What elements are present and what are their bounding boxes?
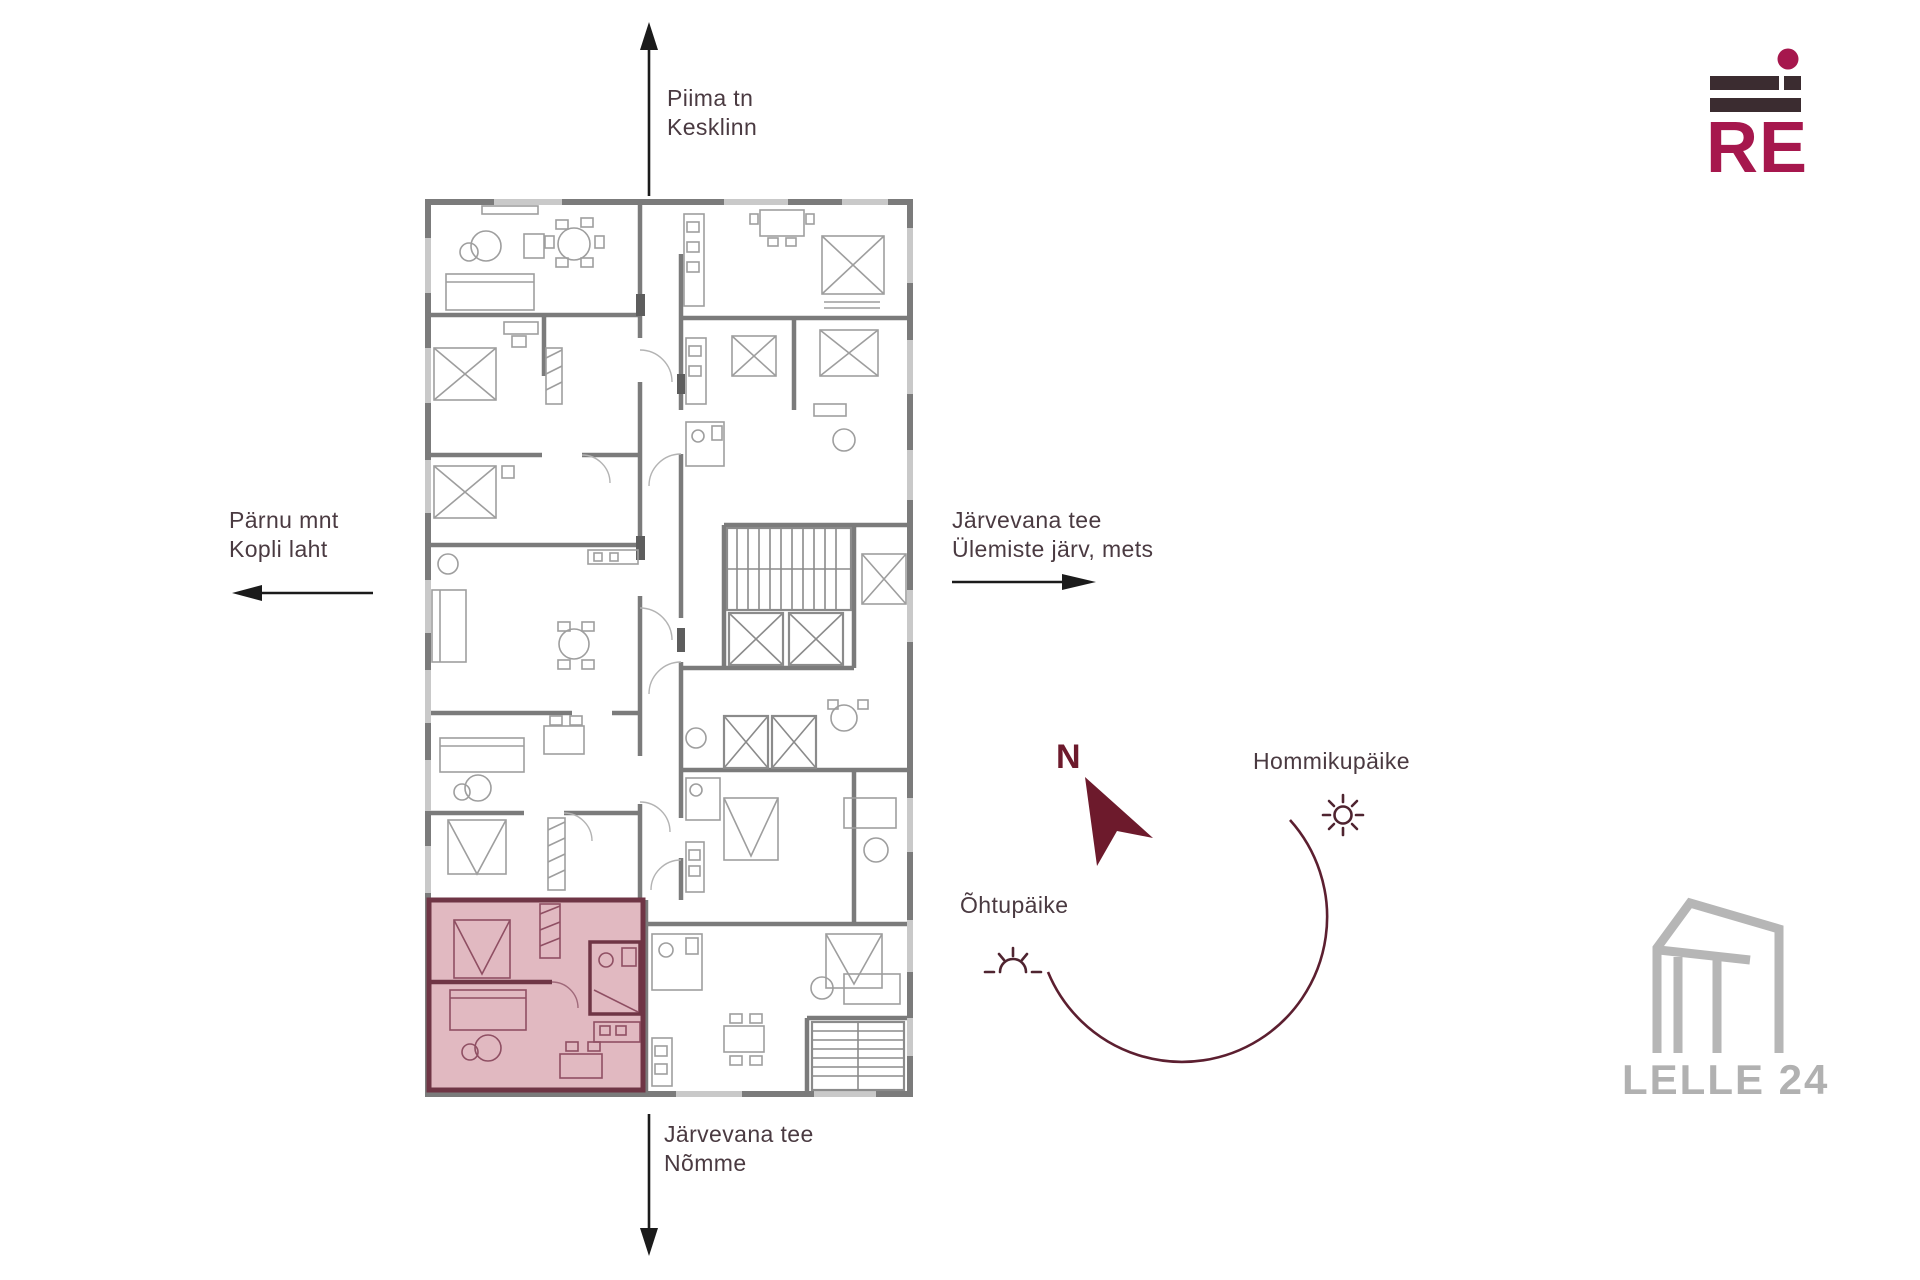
west-arrow-icon (232, 585, 373, 601)
plan-door-arcs (564, 350, 681, 890)
annotation-graphics (0, 0, 1920, 1280)
south-arrow-icon (640, 1114, 658, 1256)
compass-needle-icon (1085, 777, 1153, 866)
watermark-building-icon (1657, 903, 1779, 1053)
logo-dot-icon (1778, 49, 1799, 70)
east-arrow-icon (952, 574, 1096, 590)
brand-logo-mark (1710, 49, 1801, 113)
north-arrow-icon (640, 22, 658, 196)
plan-wall-piers (636, 294, 685, 652)
evening-sun-icon (985, 948, 1041, 972)
floorplan-page: Piima tn Kesklinn Pärnu mnt Kopli laht J… (0, 0, 1920, 1280)
highlighted-apartment-area (429, 900, 643, 1090)
plan-stairs-core (724, 528, 904, 1090)
building-floorplan (424, 198, 914, 1098)
highlighted-apartment (429, 900, 643, 1090)
morning-sun-icon (1323, 795, 1363, 835)
sun-path-arc (1048, 820, 1327, 1062)
